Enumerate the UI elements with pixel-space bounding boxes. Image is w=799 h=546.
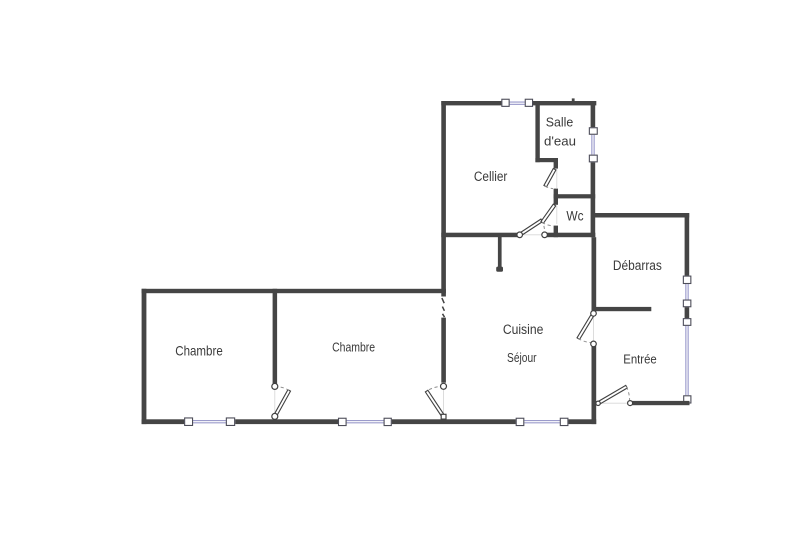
svg-text:Wc: Wc xyxy=(566,208,583,223)
svg-text:Chambre: Chambre xyxy=(175,344,223,359)
svg-text:Entrée: Entrée xyxy=(623,352,657,367)
svg-text:d'eau: d'eau xyxy=(544,134,576,149)
svg-text:Cellier: Cellier xyxy=(474,169,508,184)
svg-text:Salle: Salle xyxy=(546,115,574,130)
svg-text:Débarras: Débarras xyxy=(613,258,662,273)
svg-text:Cuisine: Cuisine xyxy=(503,322,544,337)
svg-text:Séjour: Séjour xyxy=(507,350,537,365)
svg-text:Chambre: Chambre xyxy=(332,341,375,355)
